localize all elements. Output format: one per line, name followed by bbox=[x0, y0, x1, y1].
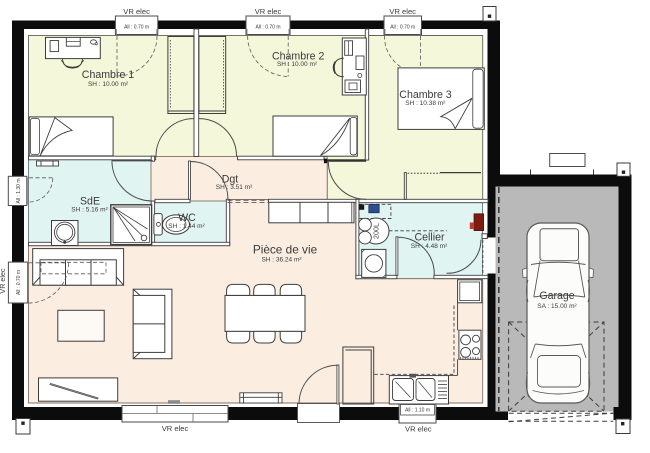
svg-text:SA : 15.00 m²: SA : 15.00 m² bbox=[537, 303, 577, 310]
svg-text:SH : 10.38 m²: SH : 10.38 m² bbox=[405, 100, 446, 107]
svg-text:All : 1.30 m: All : 1.30 m bbox=[16, 178, 22, 203]
svg-text:All : 1.10 m: All : 1.10 m bbox=[405, 408, 430, 414]
svg-text:All : 0.70 m: All : 0.70 m bbox=[255, 24, 280, 30]
svg-text:Cellier: Cellier bbox=[414, 232, 444, 244]
svg-text:All : 0.70 m: All : 0.70 m bbox=[124, 24, 149, 30]
svg-text:VR elec: VR elec bbox=[255, 7, 282, 16]
svg-text:Garage: Garage bbox=[539, 290, 574, 302]
svg-text:VR elec: VR elec bbox=[0, 268, 7, 294]
svg-text:SH : 10.00 m²: SH : 10.00 m² bbox=[88, 81, 129, 88]
svg-text:200L: 200L bbox=[372, 223, 381, 239]
svg-text:VR elec: VR elec bbox=[123, 7, 150, 16]
svg-text:Pièce de vie: Pièce de vie bbox=[253, 243, 318, 257]
svg-text:SH : 36.24 m²: SH : 36.24 m² bbox=[261, 257, 302, 264]
svg-text:SH : 10.00 m²: SH : 10.00 m² bbox=[277, 61, 318, 68]
svg-text:VR elec: VR elec bbox=[162, 424, 189, 433]
svg-text:Chambre 1: Chambre 1 bbox=[82, 69, 135, 81]
svg-text:VR elec: VR elec bbox=[405, 425, 432, 434]
svg-text:All : 0.70 m: All : 0.70 m bbox=[16, 270, 22, 295]
svg-text:VR elec: VR elec bbox=[389, 7, 416, 16]
svg-text:All : 0.70 m: All : 0.70 m bbox=[390, 24, 415, 30]
svg-text:SH : 3.51 m²: SH : 3.51 m² bbox=[216, 184, 253, 191]
svg-text:SH : 4.48 m²: SH : 4.48 m² bbox=[411, 243, 448, 250]
svg-text:SH : 5.16 m²: SH : 5.16 m² bbox=[71, 207, 108, 214]
svg-text:SH : 1.44 m²: SH : 1.44 m² bbox=[168, 223, 205, 230]
